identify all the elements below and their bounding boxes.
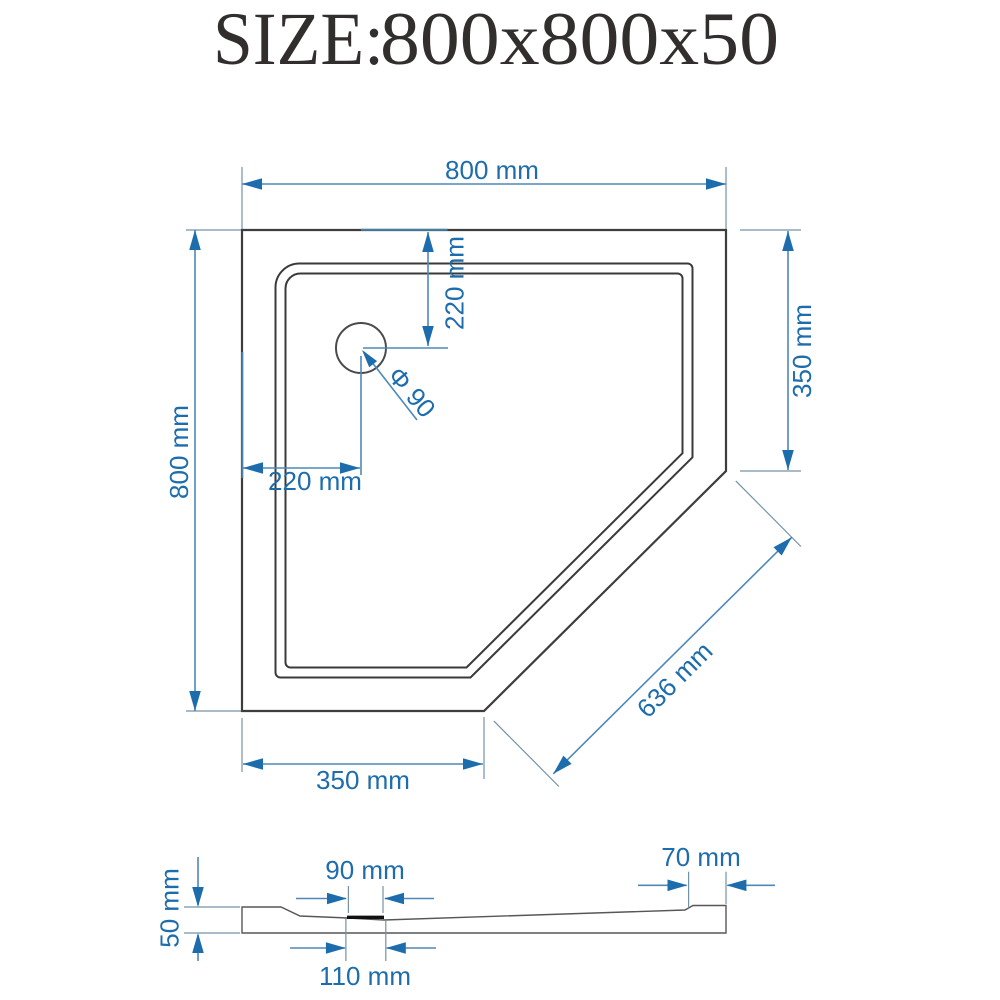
svg-text:800 mm: 800 mm — [445, 155, 539, 185]
svg-text:70 mm: 70 mm — [661, 842, 740, 872]
svg-text:50 mm: 50 mm — [155, 868, 185, 947]
svg-text:SIZE:: SIZE: — [213, 0, 384, 81]
svg-text:90 mm: 90 mm — [325, 855, 404, 885]
svg-text:350 mm: 350 mm — [787, 304, 817, 398]
svg-text:800 mm: 800 mm — [164, 405, 194, 499]
svg-text:220 mm: 220 mm — [440, 236, 470, 330]
svg-text:220 mm: 220 mm — [268, 466, 362, 496]
svg-text:350 mm: 350 mm — [316, 765, 410, 795]
svg-text:800x800x50: 800x800x50 — [380, 0, 779, 81]
svg-text:110 mm: 110 mm — [319, 961, 411, 991]
